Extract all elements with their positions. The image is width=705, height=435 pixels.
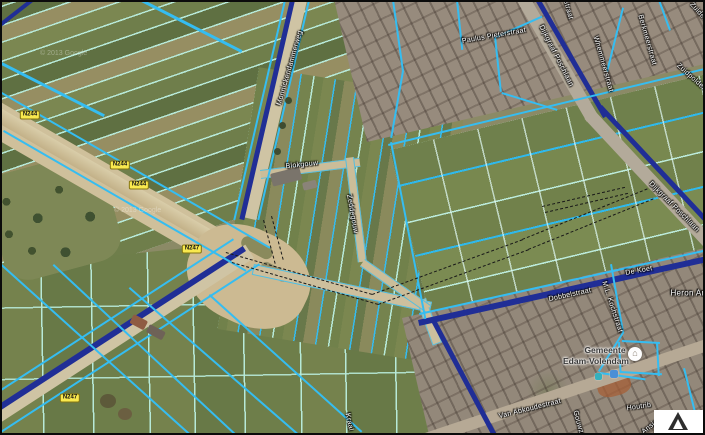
road-shield-n244: N244 — [129, 181, 149, 190]
tree — [279, 122, 286, 129]
road-shield-n247: N247 — [182, 245, 202, 254]
tree — [285, 97, 292, 104]
municipality-marker-building-icon[interactable]: ⌂ — [628, 347, 642, 361]
attribution-watermark: © 2013 Google — [40, 50, 87, 57]
tree — [274, 148, 281, 155]
tree — [100, 394, 116, 408]
attribution-watermark: © 2013 Google — [114, 207, 161, 214]
municipality-label-line1: Gemeente — [584, 345, 625, 355]
poi-marker-teal-icon[interactable] — [595, 373, 602, 380]
triangle-inner — [673, 419, 683, 429]
tree — [118, 408, 132, 420]
road-shield-n247: N247 — [60, 394, 80, 403]
road-shield-n244: N244 — [20, 111, 40, 120]
municipality-label-line2: Edam-Volendam — [563, 356, 629, 366]
poi-marker-blue-icon[interactable] — [610, 370, 618, 378]
logo-box — [654, 410, 705, 435]
road-shield-n244: N244 — [110, 161, 130, 170]
map-canvas[interactable]: N244 N244 N244 N247 N247 Monnickendammer… — [0, 0, 705, 435]
poi-label: Heron Anto — [670, 289, 705, 298]
